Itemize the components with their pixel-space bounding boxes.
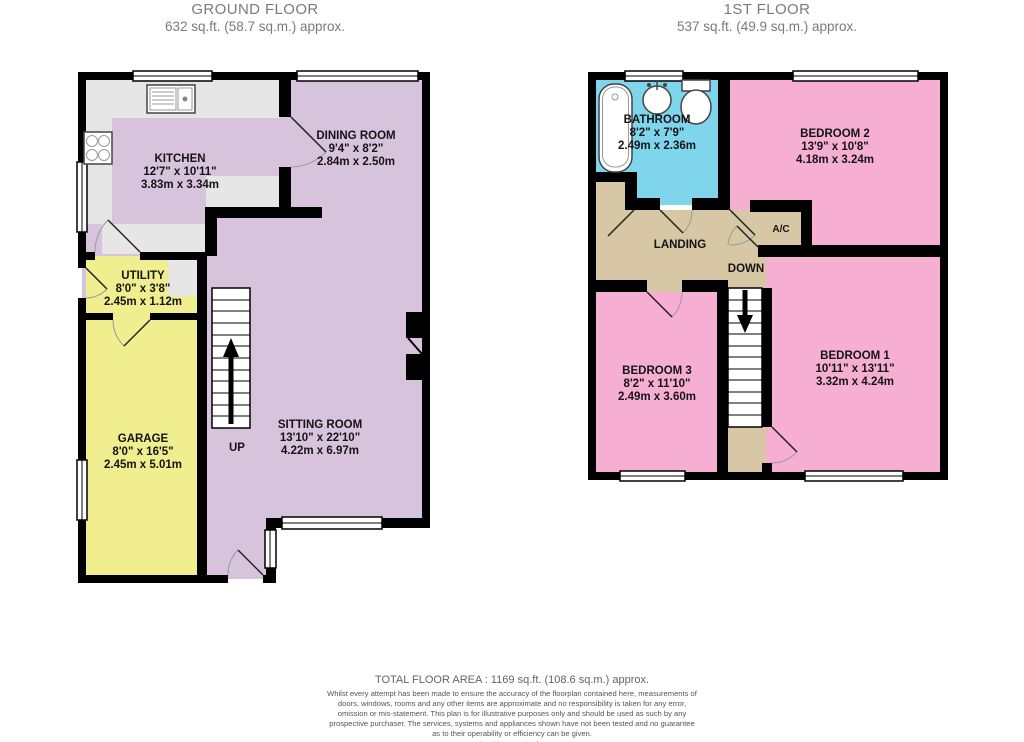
dining-imperial: 9'4" x 8'2" — [329, 143, 384, 155]
bathroom-label: BATHROOM — [624, 114, 691, 126]
kitchen-imperial: 12'7" x 10'11" — [143, 166, 216, 178]
floorplan-page: GROUND FLOOR 632 sq.ft. (58.7 sq.m.) app… — [0, 0, 1024, 742]
dining-label: DINING ROOM — [316, 130, 395, 142]
bathtub-icon — [599, 84, 632, 172]
ac-label: A/C — [772, 224, 789, 235]
ground-floor-plan: KITCHEN 12'7" x 10'11" 3.83m x 3.34m DIN… — [70, 60, 445, 595]
ground-floor-area: 632 sq.ft. (58.7 sq.m.) approx. — [75, 19, 435, 34]
sitting-metric: 4.22m x 6.97m — [281, 445, 359, 457]
first-floor-header: 1ST FLOOR 537 sq.ft. (49.9 sq.m.) approx… — [587, 1, 947, 34]
bedroom3-imperial: 8'2" x 11'10" — [624, 378, 691, 390]
garage-label: GARAGE — [118, 433, 169, 445]
bedroom2-imperial: 13'9" x 10'8" — [801, 141, 869, 153]
bedroom3-label: BEDROOM 3 — [622, 365, 692, 377]
first-floor-title: 1ST FLOOR — [587, 1, 947, 18]
sitting-label: SITTING ROOM — [278, 419, 362, 431]
utility-metric: 2.45m x 1.12m — [104, 296, 182, 308]
kitchen-label: KITCHEN — [154, 153, 205, 165]
disclaimer-text: Whilst every attempt has been made to en… — [326, 689, 698, 739]
down-label: DOWN — [728, 263, 764, 275]
sink-icon — [147, 85, 195, 113]
bedroom1-imperial: 10'11" x 13'11" — [815, 363, 894, 375]
bathroom-imperial: 8'2" x 7'9" — [630, 127, 685, 139]
bedroom1-metric: 3.32m x 4.24m — [816, 376, 894, 388]
first-floor-plan: BATHROOM 8'2" x 7'9" 2.49m x 2.36m BEDRO… — [580, 60, 960, 490]
bay-outside-cut — [276, 528, 430, 584]
stairs-down — [728, 288, 762, 427]
bedroom2-metric: 4.18m x 3.24m — [796, 154, 874, 166]
ground-floor-header: GROUND FLOOR 632 sq.ft. (58.7 sq.m.) app… — [75, 1, 435, 34]
bedroom2-label: BEDROOM 2 — [800, 128, 870, 140]
bathroom-metric: 2.49m x 2.36m — [618, 140, 696, 152]
hob-icon — [84, 132, 112, 164]
ground-floor-title: GROUND FLOOR — [75, 1, 435, 18]
garage-metric: 2.45m x 5.01m — [104, 459, 182, 471]
garage-imperial: 8'0" x 16'5" — [112, 446, 173, 458]
sitting-imperial: 13'10" x 22'10" — [280, 432, 360, 444]
bedroom1-label: BEDROOM 1 — [820, 350, 890, 362]
bedroom3-metric: 2.49m x 3.60m — [618, 391, 696, 403]
utility-label: UTILITY — [121, 270, 165, 282]
footer: TOTAL FLOOR AREA : 1169 sq.ft. (108.6 sq… — [262, 674, 762, 742]
up-label: UP — [229, 442, 245, 454]
first-floor-area: 537 sq.ft. (49.9 sq.m.) approx. — [587, 19, 947, 34]
stairs-up — [212, 288, 250, 428]
kitchen-metric: 3.83m x 3.34m — [141, 179, 219, 191]
total-floor-area: TOTAL FLOOR AREA : 1169 sq.ft. (108.6 sq… — [262, 674, 762, 686]
utility-imperial: 8'0" x 3'8" — [116, 283, 171, 295]
landing-label: LANDING — [654, 239, 706, 251]
dining-metric: 2.84m x 2.50m — [317, 156, 395, 168]
